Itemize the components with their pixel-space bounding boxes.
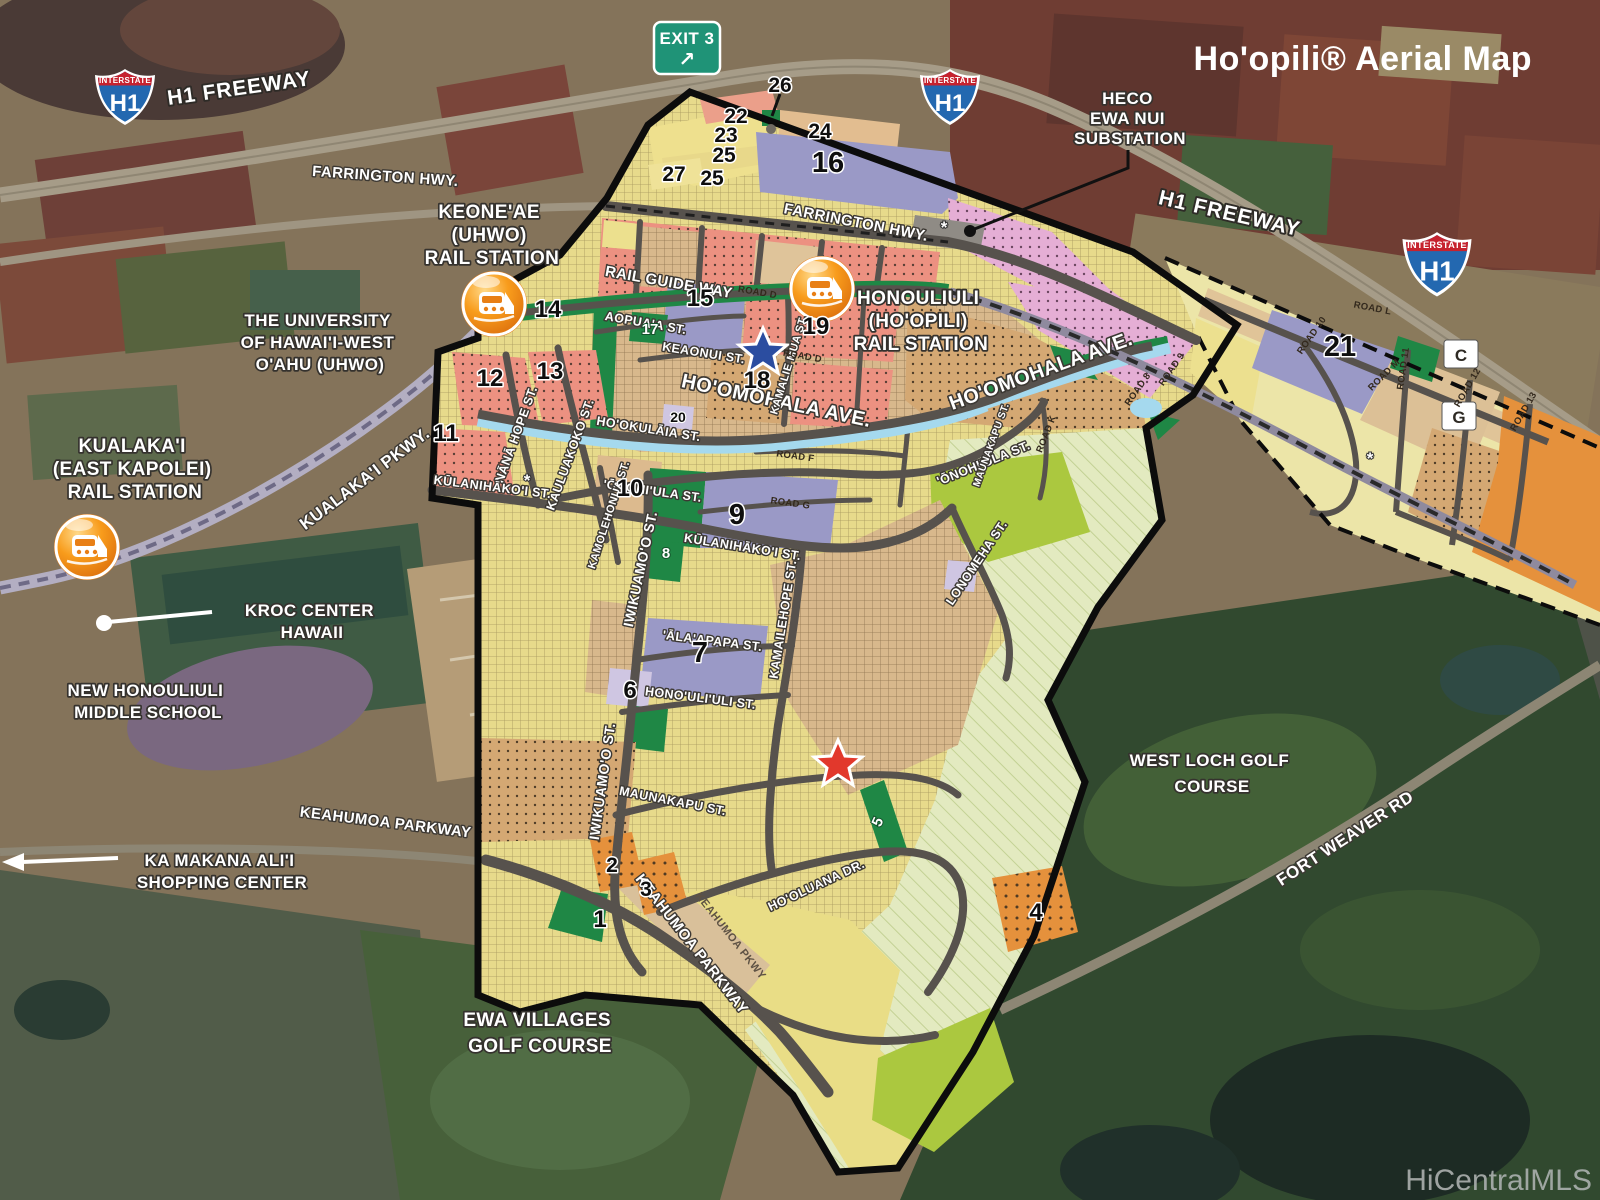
parcel-6: 6 (623, 677, 636, 704)
parcel-16: 16 (812, 147, 844, 179)
parcel-17: 17 (642, 321, 659, 338)
parcel-12: 12 (477, 365, 504, 392)
parcel-25b: 25 (700, 167, 724, 190)
parcel-26: 26 (768, 74, 791, 97)
page-title: Ho'opili® Aerial Map (1194, 40, 1532, 78)
parcel-25a: 25 (712, 144, 736, 167)
watermark: HiCentralMLS (1405, 1164, 1592, 1197)
map-canvas: INTERSTATE H1 (0, 0, 1600, 1200)
exit-sign-arrow-icon: ↗ (678, 49, 695, 71)
asterisk-kulanihakoi: * (524, 471, 531, 490)
uhwo-label: THE UNIVERSITY OF HAWAI'I-WEST O'AHU (UH… (241, 311, 400, 374)
exit-sign-label: EXIT 3 (660, 29, 715, 48)
parcel-letter-g: G (1452, 408, 1465, 427)
parcel-3: 3 (640, 878, 652, 901)
parcel-4: 4 (1029, 899, 1043, 926)
parcel-27: 27 (662, 163, 685, 186)
keoneae-station-icon (461, 271, 527, 337)
parcel-15: 15 (687, 285, 714, 312)
parcel-19: 19 (803, 313, 830, 340)
asterisk-corridor: * (1367, 449, 1374, 468)
kualakai-station-icon (54, 514, 120, 580)
parcel-18: 18 (744, 367, 771, 394)
parcel-14: 14 (535, 296, 562, 323)
parcel-8: 8 (662, 545, 670, 562)
parcel-20: 20 (670, 409, 686, 425)
parcel-letter-c: C (1455, 346, 1467, 365)
parcel-24: 24 (808, 120, 832, 143)
asterisk-farrington: * (941, 218, 948, 237)
parcel-9: 9 (729, 499, 745, 531)
exit-3-sign: EXIT 3 ↗ (654, 22, 720, 74)
parcel-7: 7 (692, 637, 708, 669)
parcel-10: 10 (617, 475, 644, 502)
parcel-2: 2 (606, 854, 618, 877)
honouliuli-station-label: HONOULIULI (HO'OPILI) RAIL STATION (854, 288, 989, 355)
parcel-13: 13 (537, 358, 564, 385)
hoopili-aerial-map: INTERSTATE H1 (0, 0, 1600, 1200)
parcel-11: 11 (433, 420, 458, 447)
parcel-1: 1 (593, 906, 606, 933)
parcel-21: 21 (1324, 331, 1356, 363)
